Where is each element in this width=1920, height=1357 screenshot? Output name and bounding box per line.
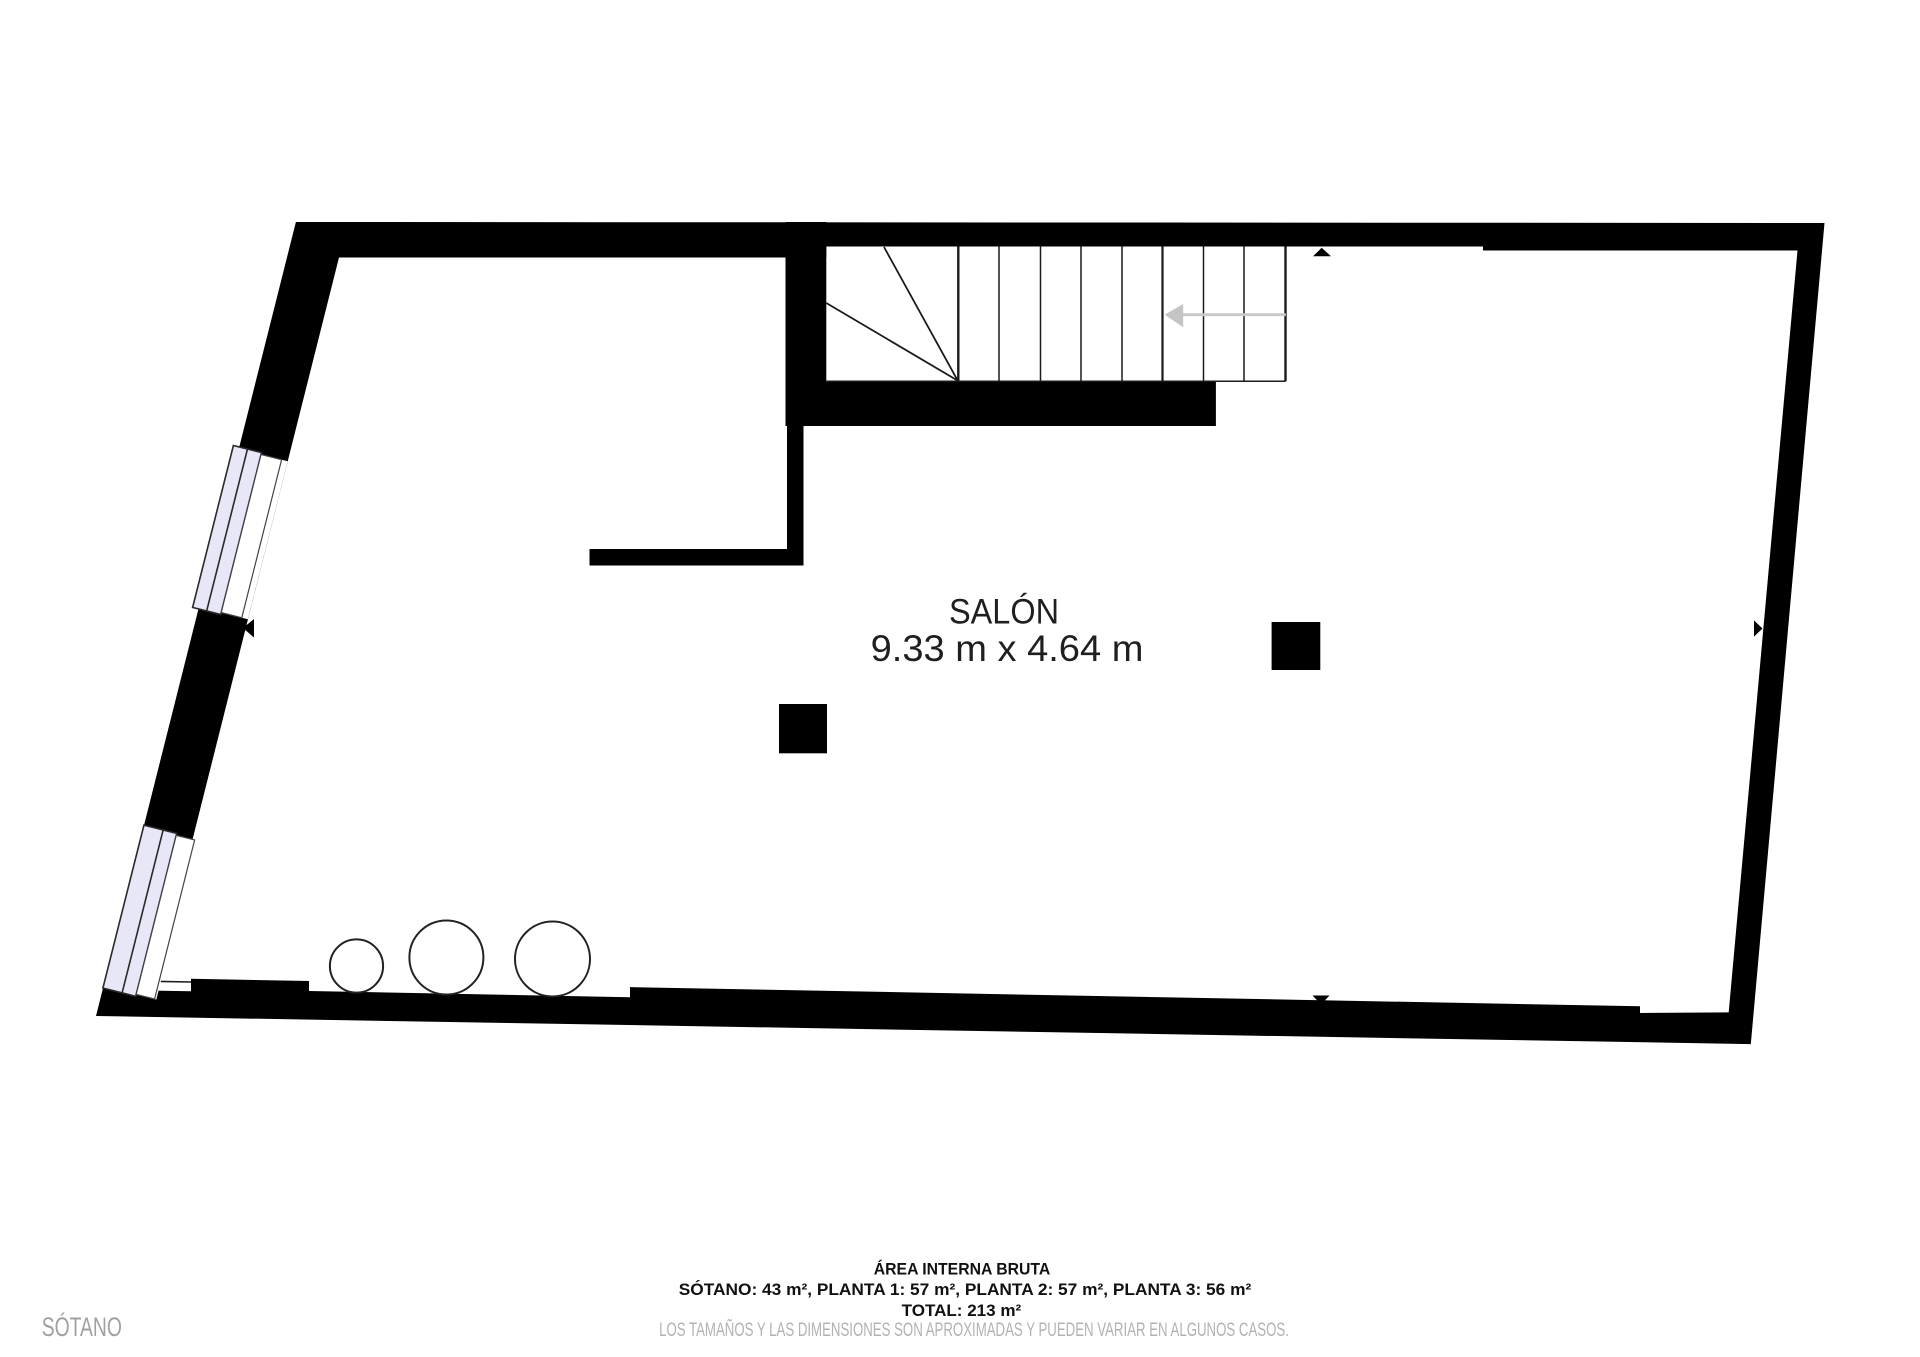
svg-text:SÓTANO: 43 m², PLANTA 1: 57 m²: SÓTANO: 43 m², PLANTA 1: 57 m², PLANTA 2… [679,1280,1252,1299]
svg-text:SALÓN: SALÓN [949,592,1059,631]
svg-text:ÁREA INTERNA BRUTA: ÁREA INTERNA BRUTA [874,1260,1051,1279]
svg-text:9.33 m x 4.64 m: 9.33 m x 4.64 m [871,627,1144,669]
svg-text:LOS TAMAÑOS Y LAS DIMENSIONES: LOS TAMAÑOS Y LAS DIMENSIONES SON APROXI… [659,1319,1289,1341]
svg-text:TOTAL: 213 m²: TOTAL: 213 m² [902,1302,1022,1320]
svg-text:SÓTANO: SÓTANO [42,1311,122,1342]
